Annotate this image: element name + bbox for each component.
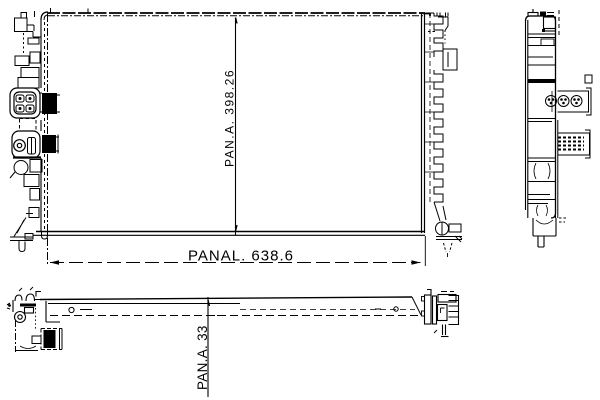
svg-text:PANAL. 638.6: PANAL. 638.6	[188, 248, 294, 265]
svg-text:PAN.A. 398.26: PAN.A. 398.26	[223, 69, 237, 167]
svg-text:PAN.A. 33: PAN.A. 33	[195, 325, 210, 390]
